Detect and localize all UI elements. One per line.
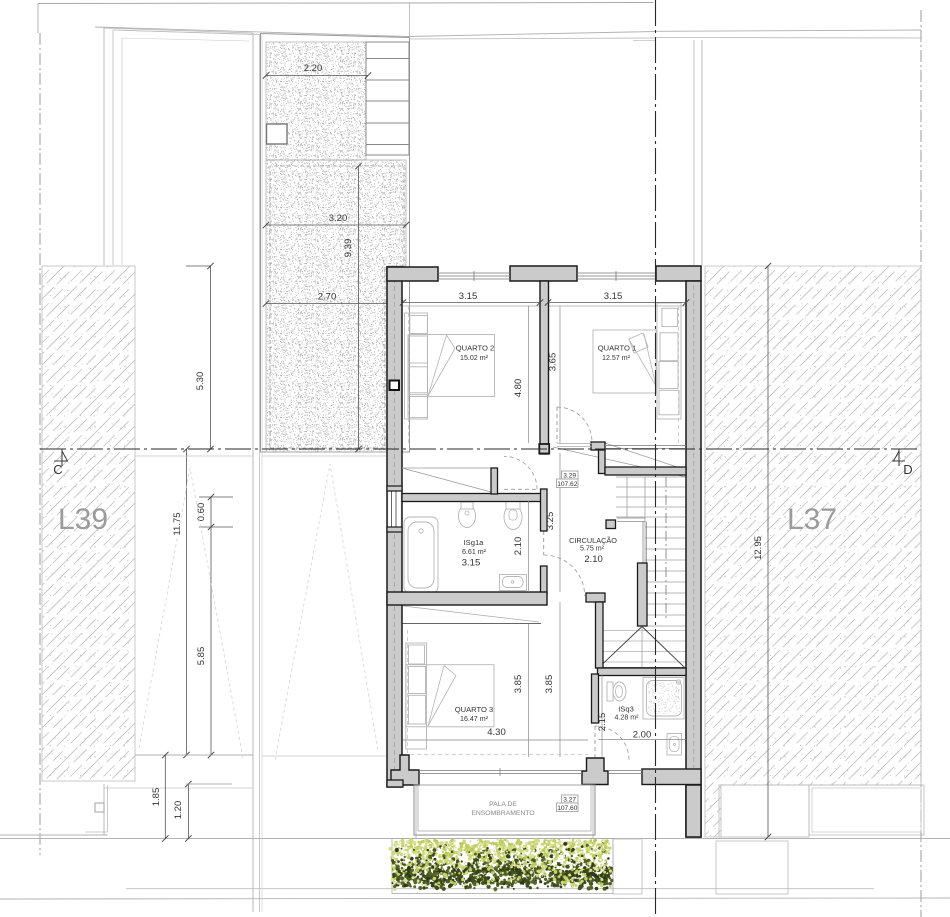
svg-text:5.75 m²: 5.75 m² (580, 545, 605, 553)
svg-text:12.57 m²: 12.57 m² (602, 354, 631, 362)
svg-text:2.15: 2.15 (597, 713, 608, 732)
svg-text:3.25: 3.25 (545, 512, 556, 531)
svg-text:2.10: 2.10 (513, 537, 524, 556)
svg-text:ISq3: ISq3 (618, 705, 634, 714)
svg-text:3.20: 3.20 (329, 213, 348, 224)
svg-text:3.15: 3.15 (604, 291, 623, 302)
svg-text:3.27: 3.27 (563, 797, 576, 804)
svg-text:D: D (903, 462, 912, 477)
svg-text:ENSOMBRAMENTO: ENSOMBRAMENTO (471, 810, 534, 817)
svg-text:1.20: 1.20 (173, 801, 184, 820)
svg-text:2.00: 2.00 (633, 730, 652, 741)
svg-text:C: C (53, 462, 62, 477)
svg-text:2.10: 2.10 (584, 554, 603, 565)
svg-text:5.30: 5.30 (195, 372, 206, 391)
svg-text:3.15: 3.15 (459, 291, 478, 302)
svg-text:2.70: 2.70 (318, 292, 337, 303)
svg-text:15.02 m²: 15.02 m² (460, 354, 489, 362)
svg-text:4.80: 4.80 (513, 379, 524, 398)
svg-text:QUARTO 3: QUARTO 3 (455, 705, 494, 714)
svg-text:3.15: 3.15 (462, 558, 481, 569)
svg-text:3.85: 3.85 (544, 675, 555, 694)
svg-text:L39: L39 (58, 503, 108, 536)
svg-text:3.29: 3.29 (563, 473, 576, 480)
svg-text:ISg1a: ISg1a (464, 538, 485, 547)
svg-text:QUARTO 2: QUARTO 2 (456, 344, 495, 353)
svg-text:2.20: 2.20 (304, 63, 323, 74)
svg-text:PALA DE: PALA DE (489, 801, 517, 808)
svg-text:107.62: 107.62 (557, 481, 578, 488)
svg-text:4.30: 4.30 (487, 727, 506, 738)
svg-text:6.61 m²: 6.61 m² (462, 548, 487, 556)
svg-text:4.28 m²: 4.28 m² (614, 714, 639, 722)
svg-text:3.65: 3.65 (548, 353, 559, 372)
svg-text:QUARTO 1: QUARTO 1 (598, 344, 637, 353)
svg-text:5.85: 5.85 (196, 647, 207, 666)
svg-text:12.95: 12.95 (753, 536, 764, 560)
svg-text:16.47 m²: 16.47 m² (460, 715, 489, 723)
svg-text:107.60: 107.60 (557, 805, 578, 812)
svg-text:1.85: 1.85 (151, 788, 162, 807)
svg-text:0.60: 0.60 (196, 503, 207, 522)
svg-text:3.85: 3.85 (513, 675, 524, 694)
svg-text:9.39: 9.39 (343, 239, 354, 258)
svg-text:L37: L37 (787, 503, 837, 536)
